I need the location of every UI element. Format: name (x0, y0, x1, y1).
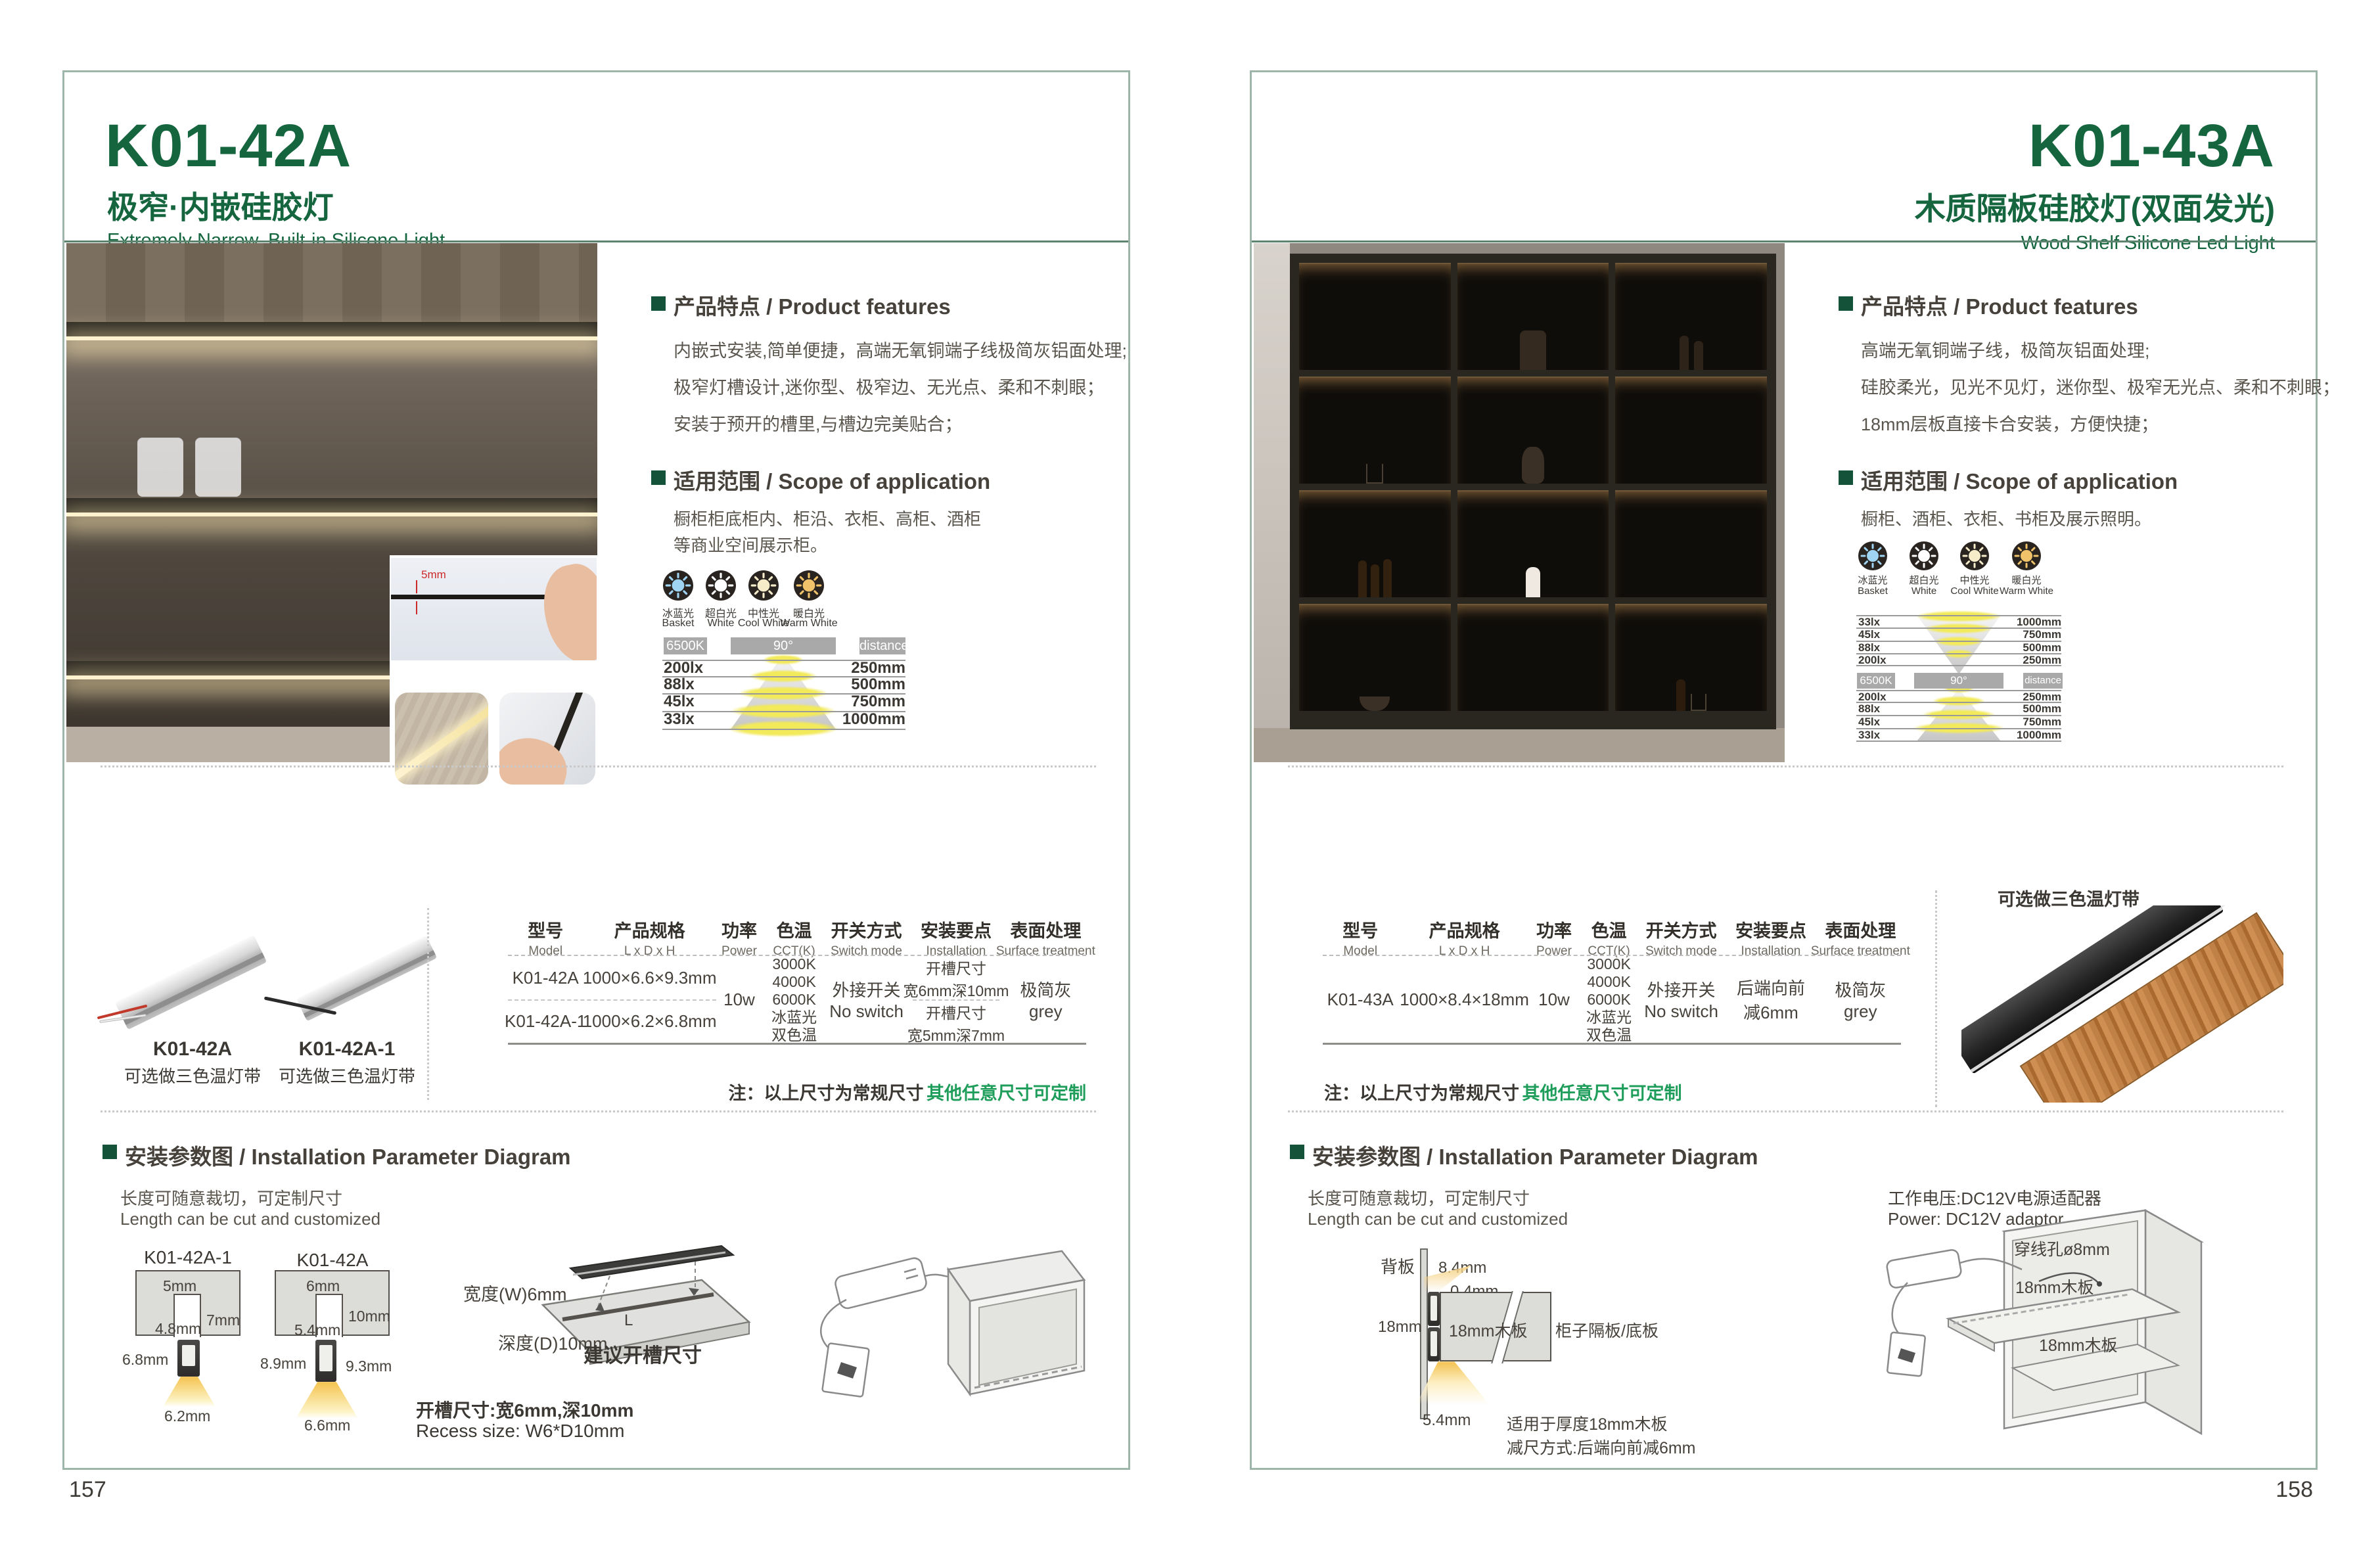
bottle (1358, 560, 1367, 597)
lux-value: 33lx (1858, 616, 1880, 629)
bottle (1680, 336, 1689, 370)
feature-line: 高端无氧铜端子线，极简灰铝面处理; (1861, 336, 2150, 362)
cabinet-cell (1299, 490, 1451, 597)
col-header: 型号 (528, 917, 563, 942)
recess-size-en: Recess size: W6*D10mm (416, 1421, 624, 1442)
light-color-icon-coolwhite (1960, 541, 1989, 570)
cct-bar: 6500K (1857, 673, 1895, 689)
cell-cct: 6000K (772, 991, 816, 1009)
dim-bottom-width: 6.2mm (164, 1407, 210, 1425)
page-right: K01-43A 木质隔板硅胶灯(双面发光) Wood Shelf Silicon… (1250, 70, 2318, 1470)
dimension-arrow (416, 601, 417, 614)
figurine (1526, 567, 1540, 597)
cell-cct: 双色温 (1586, 1026, 1632, 1044)
cell-power: 10w (1538, 990, 1570, 1010)
scope-line: 等商业空间展示柜。 (674, 532, 827, 557)
icon-label-cn: 冰蓝光 (1843, 573, 1902, 587)
icon-label-en: Basket (1843, 585, 1902, 597)
glass (1366, 464, 1383, 484)
distance-bar: distance (2023, 673, 2063, 689)
icon-label-cn: 暖白光 (1997, 573, 2056, 587)
light-color-icon-iceblue (1858, 541, 1887, 570)
bottle (1694, 341, 1703, 370)
table-rule (508, 955, 1086, 956)
storage-box (195, 438, 241, 497)
bottle (1371, 564, 1379, 597)
features-heading: 产品特点 / Product features (1861, 289, 2138, 321)
cabinet-cell (1615, 604, 1767, 711)
cabinet-cell (1615, 490, 1767, 597)
bottle (1383, 559, 1392, 597)
cell-size: 1000×6.2×6.8mm (583, 1011, 717, 1032)
col-header: 色温 (777, 917, 812, 942)
scope-heading: 适用范围 / Scope of application (674, 464, 990, 495)
lux-value: 33lx (1858, 729, 1880, 742)
col-header: 功率 (1536, 917, 1572, 942)
cell-model: K01-42A (513, 968, 579, 988)
recess-width-label: 宽度(W)6mm (463, 1280, 566, 1306)
light-color-icon-warmwhite (2012, 541, 2041, 570)
storage-box (137, 438, 183, 497)
cell-surface: 极简灰 (1835, 977, 1886, 1001)
cell-switch: 外接开关 (833, 977, 901, 1001)
profile-cavity (1430, 1296, 1437, 1321)
light-color-icon-white (1910, 541, 1938, 570)
title-divider (1252, 240, 2316, 242)
dim-height: 6.8mm (122, 1351, 168, 1369)
bottle (1676, 679, 1685, 711)
page-title: K01-43A (2028, 116, 2275, 176)
shelf-label: 18mm木板 (2039, 1333, 2117, 1356)
lux-value: 200lx (1858, 691, 1887, 704)
cell-cct: 3000K (1587, 955, 1631, 973)
length-note-en: Length can be cut and customized (120, 1209, 380, 1229)
col-header: 开关方式 (1646, 917, 1717, 942)
product-image-k0143a (1961, 905, 2283, 1103)
back-panel-label: 背板 (1381, 1254, 1415, 1278)
beam-angle-bar: 90° (1914, 673, 2003, 689)
inset-panel: 5mm (390, 555, 599, 769)
cabinet-cell (1615, 377, 1767, 484)
install-heading: 安装参数图 / Installation Parameter Diagram (1312, 1139, 1758, 1171)
col-header: 型号 (1342, 917, 1378, 942)
title-divider (64, 240, 1128, 242)
icon-label-cn: 中性光 (1945, 573, 2004, 587)
profile-cavity (182, 1345, 195, 1366)
row-separator (913, 999, 999, 1001)
note-highlight: 其他任意尺寸可定制 (1522, 1084, 1682, 1103)
feature-line: 18mm层板直接卡合安装，方便快捷； (1861, 410, 2159, 436)
section-bullet (1839, 296, 1853, 311)
cell-cct: 冰蓝光 (1586, 1009, 1632, 1026)
note-highlight: 其他任意尺寸可定制 (927, 1084, 1086, 1103)
cell-cct: 4000K (772, 973, 816, 991)
section-separator (1288, 1110, 2283, 1112)
product-caption: 可选做三色温灯带 (114, 1063, 271, 1087)
icon-label-en: Warm White (779, 618, 838, 629)
profile-cross-section (1428, 1327, 1440, 1361)
page-subtitle-cn: 极窄·内嵌硅胶灯 (107, 191, 334, 225)
icon-label-en: Warm White (1997, 585, 2056, 597)
beam-angle-bar: 90° (731, 637, 836, 654)
marble-wall (1254, 243, 1290, 762)
col-header: 安装要点 (1735, 917, 1806, 942)
distance-value: 500mm (1996, 641, 2061, 654)
section-bullet (1839, 470, 1853, 485)
section-bullet (651, 470, 666, 485)
ornament (1520, 331, 1546, 370)
profile-cross-section (315, 1340, 336, 1382)
note-text: 注：以上尺寸为常规尺寸 (729, 1084, 924, 1103)
cell-cct: 6000K (1587, 991, 1631, 1009)
cell-size: 1000×8.4×18mm (1400, 990, 1529, 1010)
catalog-spread: K01-42A 极窄·内嵌硅胶灯 Extremely Narrow. Built… (0, 0, 2380, 1552)
distance-value: 1000mm (1996, 729, 2061, 742)
col-header: 功率 (721, 917, 757, 942)
hand (536, 559, 597, 660)
col-header: 产品规格 (1429, 917, 1500, 942)
section-separator (1288, 765, 2283, 767)
cell-cct: 冰蓝光 (771, 1009, 817, 1026)
col-header: 开关方式 (831, 917, 902, 942)
glow-strip (395, 693, 488, 785)
distance-value: 1000mm (1996, 616, 2061, 629)
lux-value: 88lx (1858, 641, 1880, 654)
distance-value: 750mm (1996, 628, 2061, 641)
vertical-separator (427, 908, 429, 1100)
page-number: 158 (2247, 1477, 2313, 1503)
note-text: 注：以上尺寸为常规尺寸 (1324, 1084, 1519, 1103)
install-heading: 安装参数图 / Installation Parameter Diagram (125, 1139, 571, 1171)
profile-cavity (319, 1345, 332, 1371)
lux-value: 88lx (664, 675, 695, 694)
col-header: 色温 (1591, 917, 1627, 942)
cell-size: 1000×6.6×9.3mm (583, 968, 717, 988)
cell-model: K01-42A-1 (505, 1011, 586, 1032)
table-note: 注：以上尺寸为常规尺寸 其他任意尺寸可定制 (1324, 1079, 1682, 1105)
lux-value: 45lx (1858, 628, 1880, 641)
cell-cct: 3000K (772, 955, 816, 973)
section-separator (101, 1110, 1096, 1112)
inset-photo-wood-groove (395, 693, 488, 785)
table-bottom-rule (1323, 1043, 1901, 1045)
col-header: 产品规格 (614, 917, 685, 942)
panel-label: 柜子隔板/底板 (1555, 1318, 1659, 1342)
length-note-cn: 长度可随意裁切，可定制尺寸 (120, 1185, 342, 1210)
inset-photo-thin-strip: 5mm (391, 558, 597, 660)
bowl (1360, 696, 1390, 711)
inset-photo-hand-strip (499, 693, 595, 785)
led-strip-glow (66, 336, 597, 340)
product-name: K01-42A-1 (281, 1038, 413, 1061)
light-color-icon-warmwhite (794, 570, 824, 601)
cell-install: 后端向前 (1737, 975, 1805, 999)
dim-inner-width: 5.4mm (294, 1321, 340, 1339)
glass (1691, 694, 1706, 711)
cell-surface: grey (1029, 1001, 1063, 1022)
profile-cross-section (1428, 1292, 1440, 1326)
spec-table-header: 型号Model 产品规格L x D x H 功率Power 色温CCT(K) 开… (1323, 917, 1901, 953)
lux-value: 45lx (1858, 716, 1880, 729)
distance-gridline (662, 729, 905, 730)
cell-surface: 极简灰 (1020, 977, 1071, 1001)
spec-table-body: K01-43A 1000×8.4×18mm 10w 3000K 4000K 60… (1323, 956, 1901, 1043)
display-cabinet (1290, 254, 1776, 729)
profile-groove (304, 950, 436, 1018)
section-separator (101, 765, 1096, 767)
page-title: K01-42A (105, 116, 352, 176)
product-image-k0142a1 (271, 913, 442, 1035)
product-name: K01-42A (127, 1038, 258, 1061)
cell-cct: 4000K (1587, 973, 1631, 991)
cct-bar: 6500K (664, 637, 707, 654)
cell-cct: 双色温 (771, 1026, 817, 1044)
feature-line: 安装于预开的槽里,与槽边完美贴合； (674, 410, 963, 436)
page-subtitle-cn: 木质隔板硅胶灯(双面发光) (1915, 192, 2275, 226)
distance-value: 250mm (1996, 654, 2061, 667)
board-label: 18mm木板 (1449, 1318, 1527, 1342)
lux-value: 88lx (1858, 702, 1880, 716)
features-heading: 产品特点 / Product features (674, 289, 951, 321)
dim-top-width: 5mm (163, 1277, 196, 1295)
lux-value: 45lx (664, 693, 695, 711)
cell-install: 减6mm (1743, 999, 1798, 1024)
light-color-icon-white (706, 570, 736, 601)
dim-inner-width: 4.8mm (155, 1320, 201, 1338)
distance-value: 500mm (840, 675, 905, 694)
length-note-en: Length can be cut and customized (1308, 1209, 1568, 1229)
table-note: 注：以上尺寸为常规尺寸 其他任意尺寸可定制 (656, 1079, 1086, 1105)
light-pool (1933, 696, 1984, 706)
page-number: 157 (69, 1477, 106, 1503)
cell-install: 开槽尺寸宽6mm深10mm (903, 956, 1009, 1001)
spec-table: 型号Model 产品规格L x D x H 功率Power 色温CCT(K) 开… (1323, 917, 1901, 1043)
shelf-board (66, 498, 597, 513)
shelf-label: 18mm木板 (2015, 1275, 2094, 1298)
col-header: 表面处理 (1825, 917, 1896, 942)
section-bullet (103, 1145, 117, 1159)
feature-line: 极窄灯槽设计,迷你型、极窄边、无光点、柔和不刺眼； (674, 373, 1105, 399)
light-color-icon-iceblue (663, 570, 693, 601)
feature-line: 内嵌式安装,简单便捷，高端无氧铜端子线极简灰铝面处理; (674, 336, 1127, 362)
section-bullet (1290, 1145, 1304, 1159)
diagram-note: 适用于厚度18mm木板 (1507, 1411, 1667, 1435)
cell-switch: No switch (829, 1001, 904, 1022)
profile-cross-section (177, 1340, 200, 1377)
row-separator (508, 999, 716, 1001)
light-color-icon-coolwhite (748, 570, 779, 601)
table-rule (1323, 955, 1901, 956)
cabinet-cell (1457, 377, 1609, 484)
cabinet-cell (1615, 263, 1767, 370)
lux-value: 200lx (664, 659, 703, 677)
lux-value: 200lx (1858, 654, 1887, 667)
cabinet-cell (1457, 490, 1609, 597)
lux-value: 33lx (664, 710, 695, 729)
spec-table: 型号Model 产品规格L x D x H 功率Power 色温CCT(K) 开… (508, 917, 1086, 1043)
spec-table-header: 型号Model 产品规格L x D x H 功率Power 色温CCT(K) 开… (508, 917, 1086, 953)
cell-power: 10w (723, 990, 755, 1010)
distance-value: 250mm (840, 659, 905, 677)
vertical-separator (1935, 890, 1937, 1107)
icon-label-en: Cool White (1945, 585, 2004, 597)
dim-top-width: 6mm (306, 1277, 340, 1295)
wire-hole-label: 穿线孔ø8mm (2014, 1237, 2110, 1260)
cell-install: 开槽尺寸宽5mm深7mm (907, 1001, 1005, 1045)
recess-caption: 建议开槽尺寸 (584, 1339, 702, 1368)
cabinet-cell (1299, 377, 1451, 484)
dim-bottom-width: 6.6mm (304, 1417, 350, 1434)
col-header: 表面处理 (1010, 917, 1081, 942)
dim-depth: 7mm (206, 1312, 240, 1329)
recess-size-cn: 开槽尺寸:宽6mm,深10mm (416, 1396, 633, 1423)
shelf-board (66, 322, 597, 336)
diagram-note: 减尺方式:后端向前减6mm (1507, 1435, 1696, 1459)
section-bullet (651, 296, 666, 311)
distance-bar: distance (859, 637, 905, 654)
led-strip-glow (66, 513, 597, 516)
scope-line: 橱柜、酒柜、衣柜、书柜及展示照明。 (1861, 506, 2151, 530)
silicone-strip (391, 595, 557, 599)
cell-surface: grey (1844, 1001, 1877, 1022)
wood-panel (66, 243, 597, 322)
cabinet-cell (1299, 604, 1451, 711)
main-photo (1254, 243, 1785, 762)
cell-switch: No switch (1644, 1001, 1718, 1022)
dim-height: 8.9mm (260, 1355, 306, 1373)
cabinet-drawing (1869, 1171, 2277, 1460)
cell-switch: 外接开关 (1647, 977, 1716, 1001)
scope-line: 橱柜柜底柜内、柜沿、衣柜、高柜、酒柜 (674, 506, 981, 530)
product-image-k0142a (101, 913, 278, 1035)
cabinet-cell (1457, 604, 1609, 711)
light-beam (296, 1382, 358, 1419)
diagram-label: K01-42A (273, 1250, 392, 1271)
dimension-arrow (416, 580, 417, 593)
vase (1522, 447, 1544, 484)
distance-value: 1000mm (840, 710, 905, 729)
cabinet-cell (1457, 263, 1609, 370)
light-pool (1917, 611, 2001, 622)
cabinet-cell (1299, 263, 1451, 370)
feature-line: 硅胶柔光，见光不见灯，迷你型、极窄无光点、柔和不刺眼； (1861, 373, 2340, 399)
dim: 18mm (1378, 1318, 1422, 1336)
col-header: 安装要点 (921, 917, 992, 942)
profile-cavity (1430, 1331, 1437, 1356)
adapter-cabinet-drawing (800, 1242, 1089, 1432)
cell-model: K01-43A (1327, 990, 1394, 1010)
recess-length-label: L (624, 1312, 633, 1330)
dim-depth: 10mm (348, 1308, 390, 1325)
distance-value: 750mm (1996, 716, 2061, 729)
dim-height2: 9.3mm (346, 1358, 392, 1375)
distance-value: 500mm (1996, 702, 2061, 716)
scope-heading: 适用范围 / Scope of application (1861, 464, 2178, 495)
distance-value: 250mm (1996, 691, 2061, 704)
dim: 5.4mm (1423, 1411, 1471, 1430)
product-caption: 可选做三色温灯带 (268, 1063, 426, 1087)
length-note-cn: 长度可随意裁切，可定制尺寸 (1308, 1185, 1530, 1210)
floor (1254, 728, 1785, 762)
distance-value: 750mm (840, 693, 905, 711)
page-subtitle-en: Wood Shelf Silicone Led Light (2021, 233, 2275, 254)
page-left: K01-42A 极窄·内嵌硅胶灯 Extremely Narrow. Built… (62, 70, 1130, 1470)
strip-dimension-label: 5mm (421, 568, 446, 582)
table-bottom-rule (508, 1043, 1086, 1045)
diagram-label: K01-42A-1 (129, 1247, 247, 1268)
light-beam (163, 1377, 216, 1407)
